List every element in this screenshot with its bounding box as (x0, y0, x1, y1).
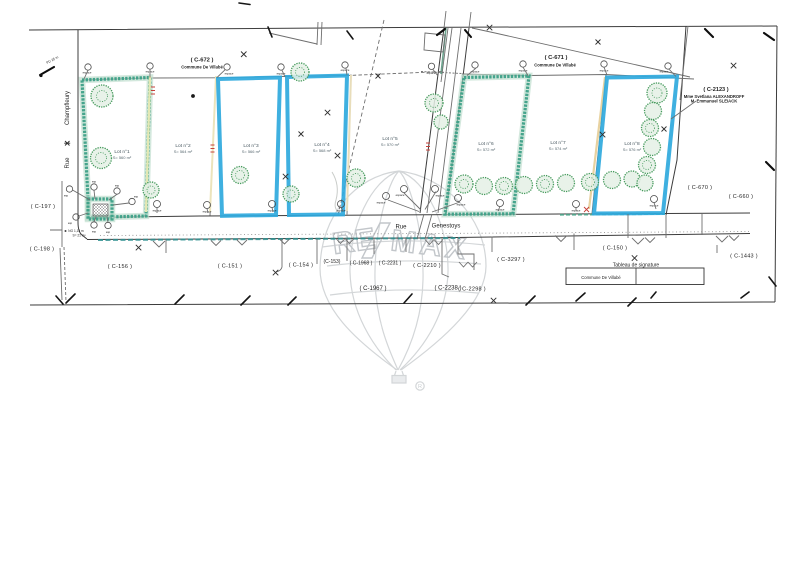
svg-text:( C-197 ): ( C-197 ) (31, 204, 55, 210)
svg-text:R: R (418, 384, 422, 390)
svg-text:esp: esp (92, 231, 97, 234)
svg-text:espace: espace (377, 202, 386, 205)
svg-text:esp: esp (92, 181, 97, 184)
svg-text:espace: espace (496, 209, 505, 212)
svg-text:( C-1443 ): ( C-1443 ) (730, 254, 758, 260)
svg-text:( C-1967 ): ( C-1967 ) (359, 286, 386, 292)
svg-text:esp: esp (115, 185, 120, 188)
svg-text:( C-154 ): ( C-154 ) (289, 263, 313, 269)
svg-text:( C-2231 ): ( C-2231 ) (379, 261, 402, 267)
svg-text:(C-153): (C-153) (324, 259, 341, 265)
svg-text:( C-671 ): ( C-671 ) (545, 55, 568, 61)
svg-text:NG 1,13 m: NG 1,13 m (68, 229, 84, 233)
svg-text:espace: espace (436, 195, 445, 198)
svg-text:S= 572 m²: S= 572 m² (477, 147, 496, 152)
svg-text:( C-150 ): ( C-150 ) (603, 246, 627, 252)
svg-text:( C-2298 ): ( C-2298 ) (458, 287, 486, 293)
svg-text:S= 574 m²: S= 574 m² (549, 146, 568, 151)
svg-text:espace: espace (650, 205, 659, 208)
svg-text:Genestoys: Genestoys (432, 224, 461, 230)
svg-text:espace: espace (600, 70, 609, 73)
svg-text:S= 570 m²: S= 570 m² (381, 142, 400, 147)
svg-text:espace: espace (396, 194, 405, 197)
svg-text:Rue: Rue (395, 225, 407, 231)
svg-text:espace: espace (457, 204, 466, 207)
svg-text:espace: espace (337, 210, 346, 213)
svg-text:S= 566 m²: S= 566 m² (242, 149, 261, 154)
svg-text:espace: espace (225, 73, 234, 76)
svg-text:espace: espace (341, 69, 350, 72)
svg-text:espace: espace (519, 70, 528, 73)
svg-text:M. Emmanuel SLEIACK: M. Emmanuel SLEIACK (691, 99, 738, 104)
svg-text:esp: esp (64, 195, 69, 198)
svg-text:esp: esp (106, 231, 111, 234)
svg-text:( C-670 ): ( C-670 ) (688, 185, 712, 191)
svg-text:S= 576 m²: S= 576 m² (623, 147, 642, 152)
svg-text:S= 568 m²: S= 568 m² (313, 148, 332, 153)
svg-text:esp: esp (134, 196, 139, 199)
svg-text:( C-672 ): ( C-672 ) (191, 58, 214, 64)
svg-text:S= 21 m²: S= 21 m² (72, 234, 85, 238)
svg-text:Commune De Villabé: Commune De Villabé (534, 63, 576, 68)
svg-text:espace: espace (427, 72, 436, 75)
svg-text:Champfleury: Champfleury (65, 91, 71, 125)
svg-text:( C-2210 ): ( C-2210 ) (413, 263, 441, 269)
svg-text:( C-151 ): ( C-151 ) (218, 264, 242, 270)
svg-text:( C-660 ): ( C-660 ) (729, 194, 753, 200)
svg-text:( C-3297 ): ( C-3297 ) (497, 257, 525, 263)
svg-text:Rue: Rue (65, 157, 71, 169)
svg-text:( C-198 ): ( C-198 ) (30, 247, 54, 253)
svg-text:S= 564 m²: S= 564 m² (174, 149, 193, 154)
svg-text:( C-2123 ): ( C-2123 ) (703, 87, 728, 93)
svg-text:( C-156 ): ( C-156 ) (108, 264, 132, 270)
svg-text:S= 560 m²: S= 560 m² (113, 155, 132, 160)
svg-text:Commune De Villabé: Commune De Villabé (181, 65, 223, 70)
svg-text:Commune De Villabé: Commune De Villabé (581, 275, 621, 280)
svg-text:espace: espace (660, 71, 669, 74)
svg-text:( C-1968 ): ( C-1968 ) (350, 261, 373, 267)
svg-text:esp: esp (68, 222, 73, 225)
